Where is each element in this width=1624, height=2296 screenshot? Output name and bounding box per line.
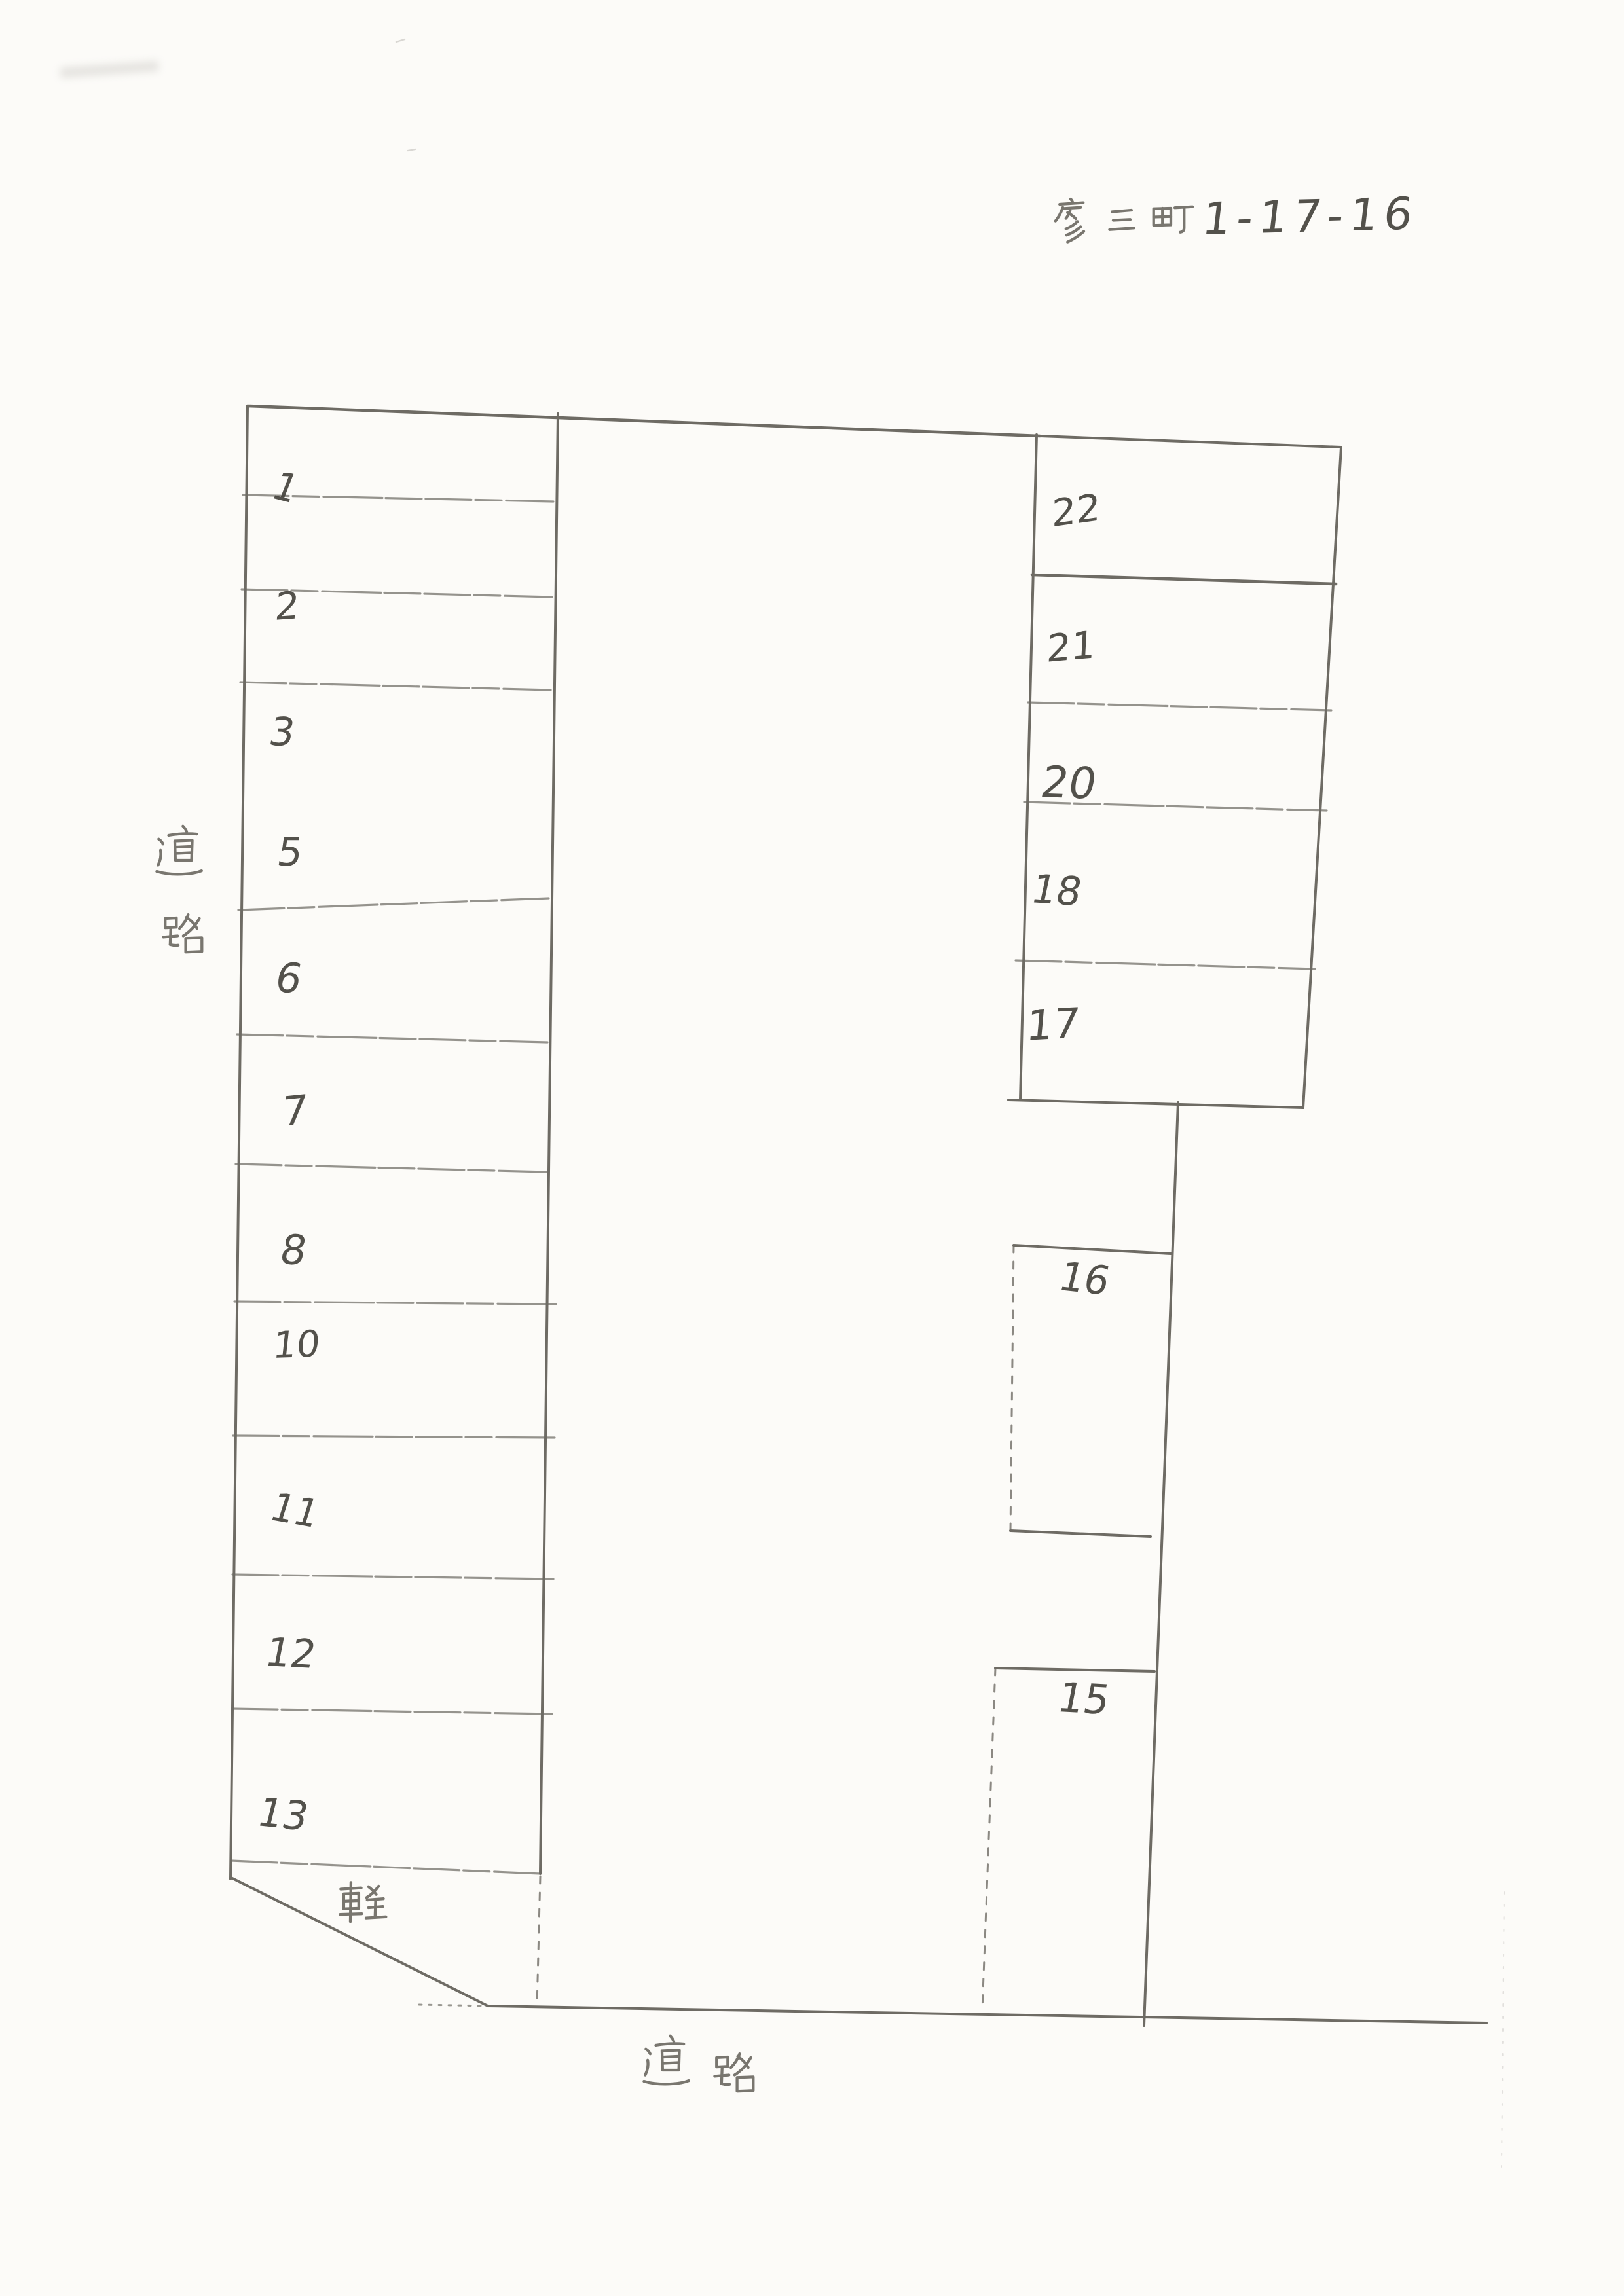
left-stall-column [231, 406, 558, 2006]
stall-15-top-edge [995, 1668, 1154, 1671]
kei-stall-right-edge [537, 1876, 540, 2006]
title-number: 1-17-16 [1200, 192, 1420, 242]
bottom-road-line-dotted-lead [419, 2005, 490, 2006]
divider-stall-11-12 [232, 1575, 553, 1579]
title-kanji-hikosomachi [1056, 199, 1192, 242]
kanji-ro-bottom [714, 2054, 753, 2091]
divider-stall-8-10 [234, 1302, 556, 1304]
stall-label-22: 22 [1052, 488, 1101, 533]
stall-label-2: 2 [274, 586, 301, 625]
stall-label-18: 18 [1027, 869, 1085, 912]
divider-stall-21-20 [1028, 702, 1331, 710]
kanji-kei [340, 1882, 386, 1922]
left-column-right-border [540, 414, 558, 1874]
stall-label-7: 7 [282, 1089, 309, 1133]
bottom-road-line [488, 2006, 1486, 2023]
kanji-ro-left [163, 915, 202, 952]
stall-label-12: 12 [262, 1633, 319, 1675]
divider-stall-5-6 [238, 898, 549, 910]
kanji-hiko [1056, 199, 1084, 242]
divider-stall-22-21 [1032, 575, 1336, 584]
kanji-michi-left [157, 826, 201, 875]
kanji-michi-bottom [644, 2036, 688, 2085]
stall-label-21: 21 [1046, 626, 1097, 668]
right-column-right-border [1303, 447, 1341, 1108]
stall-label-13: 13 [253, 1793, 312, 1837]
divider-stall-13-kei [231, 1861, 540, 1874]
divider-stall-12-13 [232, 1709, 552, 1714]
kanji-cho [1154, 207, 1192, 232]
stall-label-17: 17 [1024, 1003, 1082, 1048]
right-column-top-border [1040, 436, 1341, 447]
scan-speck [396, 39, 405, 42]
bottom-road-boundary [419, 2005, 1486, 2023]
divider-stall-18-17 [1016, 960, 1315, 969]
stall-16-left-edge [1010, 1245, 1014, 1531]
stall-16-top-edge [1014, 1245, 1171, 1254]
scanned-parking-diagram: 1-17-16 1 2 3 5 6 7 8 10 11 12 13 22 21 … [0, 0, 1624, 2296]
stall-label-10: 10 [271, 1326, 322, 1364]
kanji-san [1109, 210, 1134, 230]
road-label-left [157, 826, 202, 953]
parcel-top-border [248, 406, 1040, 436]
stall-16-bottom-edge [1010, 1531, 1151, 1537]
divider-stall-6-7 [237, 1034, 547, 1042]
kei-stall-label [340, 1882, 386, 1922]
interior-boundary-line [1144, 1102, 1178, 2026]
divider-stall-10-11 [233, 1436, 555, 1438]
scan-speck-2 [408, 149, 415, 151]
stall-label-15: 15 [1054, 1677, 1113, 1721]
stall-label-16: 16 [1055, 1257, 1113, 1302]
divider-stall-7-8 [236, 1164, 546, 1172]
right-column-bottom-border [1008, 1100, 1303, 1108]
diagram-linework [0, 0, 1624, 2296]
right-column-left-border [1020, 435, 1037, 1100]
scan-crease-line [1502, 1892, 1504, 2167]
left-column-left-border [231, 406, 248, 1879]
divider-stall-3-5 [240, 682, 551, 690]
road-label-bottom [644, 2036, 753, 2092]
stall-15-left-edge [982, 1668, 995, 2010]
stall-label-20: 20 [1037, 761, 1099, 806]
